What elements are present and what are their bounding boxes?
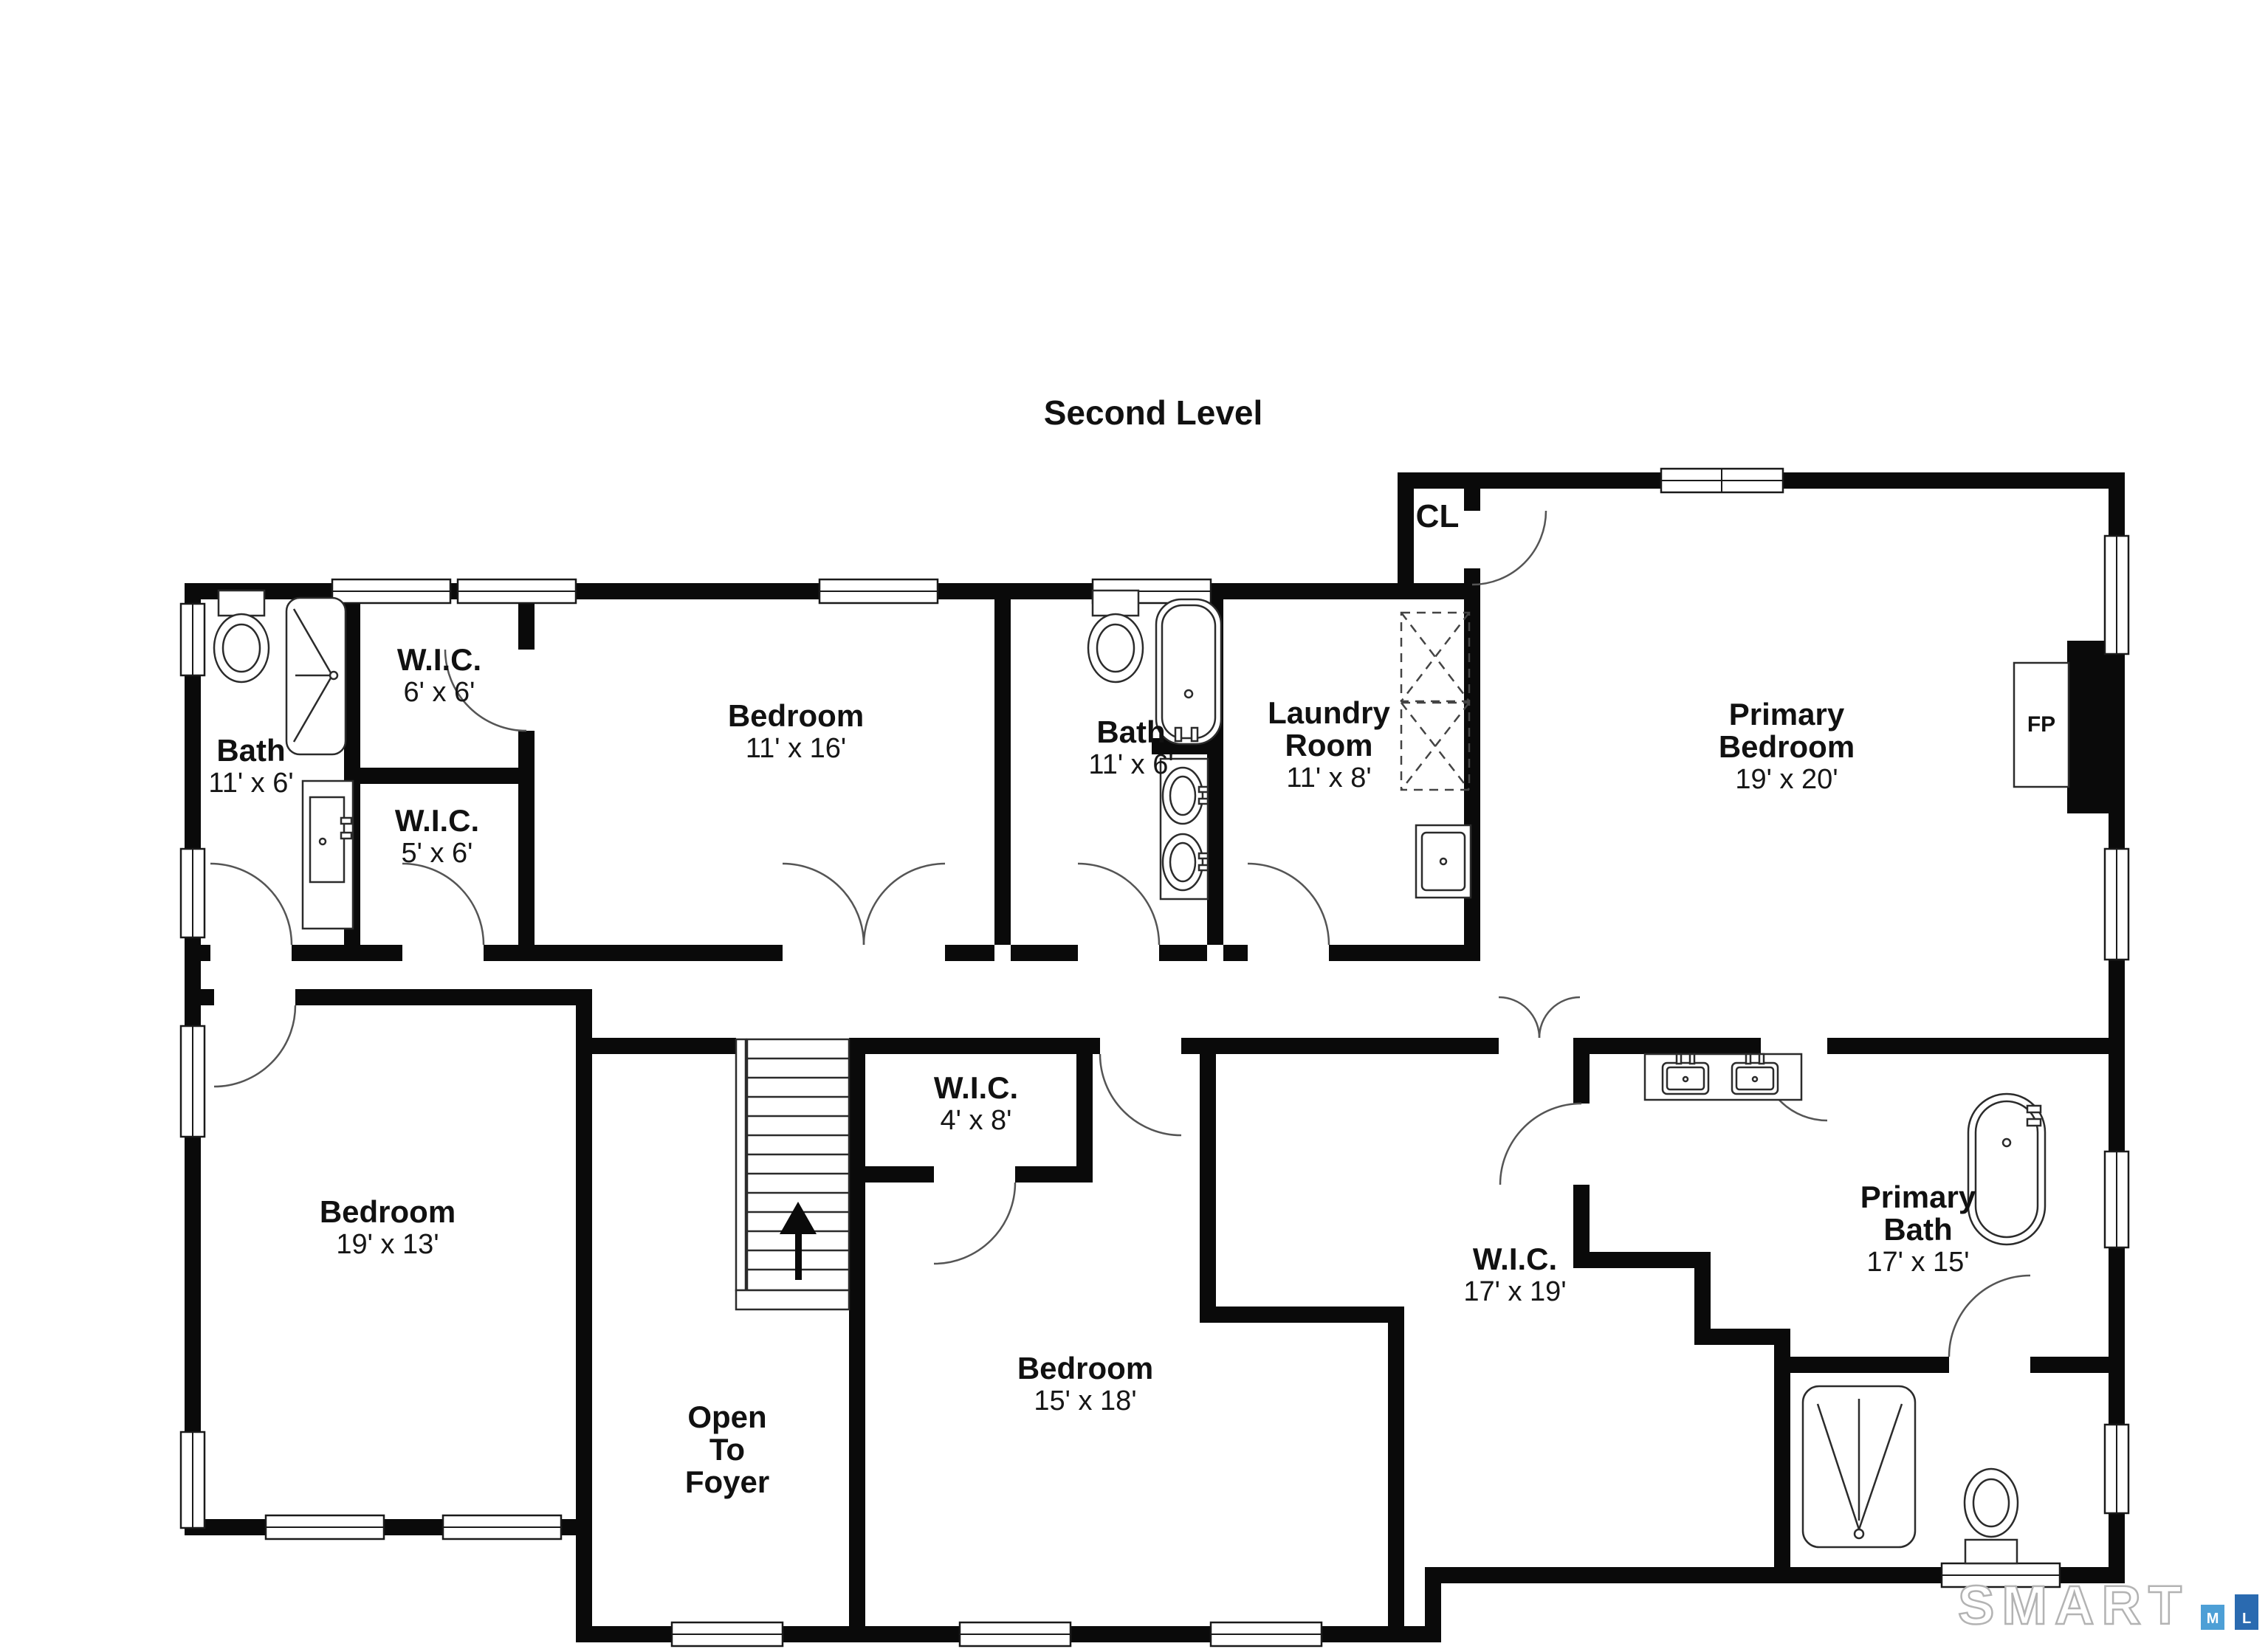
room-label-wic-5x6: W.I.C. 5' x 6' [395, 805, 479, 870]
window-icon [181, 849, 205, 937]
room-label-bedroom-11x16: Bedroom 11' x 16' [728, 700, 864, 765]
room-label-primary-bedroom: Primary Bedroom 19' x 20' [1719, 698, 1855, 796]
floor-plan-page: Second Level [0, 0, 2268, 1649]
washer-dryer-icon [1401, 613, 1469, 790]
smartmls-brand-text: SMART [1958, 1581, 2189, 1630]
freestanding-tub-icon [1968, 1094, 2045, 1245]
window-icon [819, 579, 938, 603]
window-icon [2105, 849, 2128, 960]
window-icon [672, 1622, 783, 1646]
window-icon [2105, 1425, 2128, 1513]
window-icon [181, 1432, 205, 1528]
window-icon [1211, 1622, 1322, 1646]
room-label-wic-4x8: W.I.C. 4' x 8' [934, 1072, 1018, 1137]
window-icon [1661, 469, 1783, 492]
window-icon [2105, 536, 2128, 654]
room-label-primary-bath: Primary Bath 17' x 15' [1860, 1181, 1976, 1278]
room-label-bedroom-15x18: Bedroom 15' x 18' [1017, 1352, 1153, 1417]
mls-bar-m: M [2201, 1605, 2224, 1630]
window-icon [458, 579, 576, 603]
window-icon [332, 579, 450, 603]
mls-bar-l: L [2235, 1594, 2258, 1630]
room-label-open-to-foyer: Open To Foyer [685, 1401, 769, 1498]
utility-sink-icon [1416, 825, 1471, 898]
window-icon [181, 604, 205, 675]
mls-bars: M L S [2201, 1584, 2268, 1630]
window-icon [2105, 1151, 2128, 1247]
window-icon [266, 1515, 384, 1539]
window-icon [443, 1515, 561, 1539]
window-icon [181, 1026, 205, 1137]
room-label-laundry: Laundry Room 11' x 8' [1268, 697, 1390, 794]
room-label-bedroom-19x13: Bedroom 19' x 13' [320, 1196, 456, 1261]
room-label-wic-6x6: W.I.C. 6' x 6' [397, 644, 481, 709]
room-label-bath-2: Bath 11' x 6' [1088, 716, 1173, 781]
toilet-icon [1088, 591, 1143, 682]
shower-icon [286, 598, 346, 754]
toilet-icon [214, 591, 269, 682]
window-icon [960, 1622, 1071, 1646]
fireplace-label: FP [2027, 712, 2055, 737]
room-label-wic-17x19: W.I.C. 17' x 19' [1463, 1243, 1566, 1308]
double-vanity-icon [1645, 1054, 1801, 1100]
smartmls-logo: SMART M L S [1958, 1581, 2268, 1630]
vanity-sink-icon [303, 781, 353, 929]
room-label-bath-1: Bath 11' x 6' [208, 734, 293, 799]
toilet-icon [1965, 1469, 2018, 1563]
staircase [736, 1039, 849, 1309]
shower-icon [1803, 1386, 1915, 1547]
room-label-closet: CL [1416, 500, 1460, 533]
